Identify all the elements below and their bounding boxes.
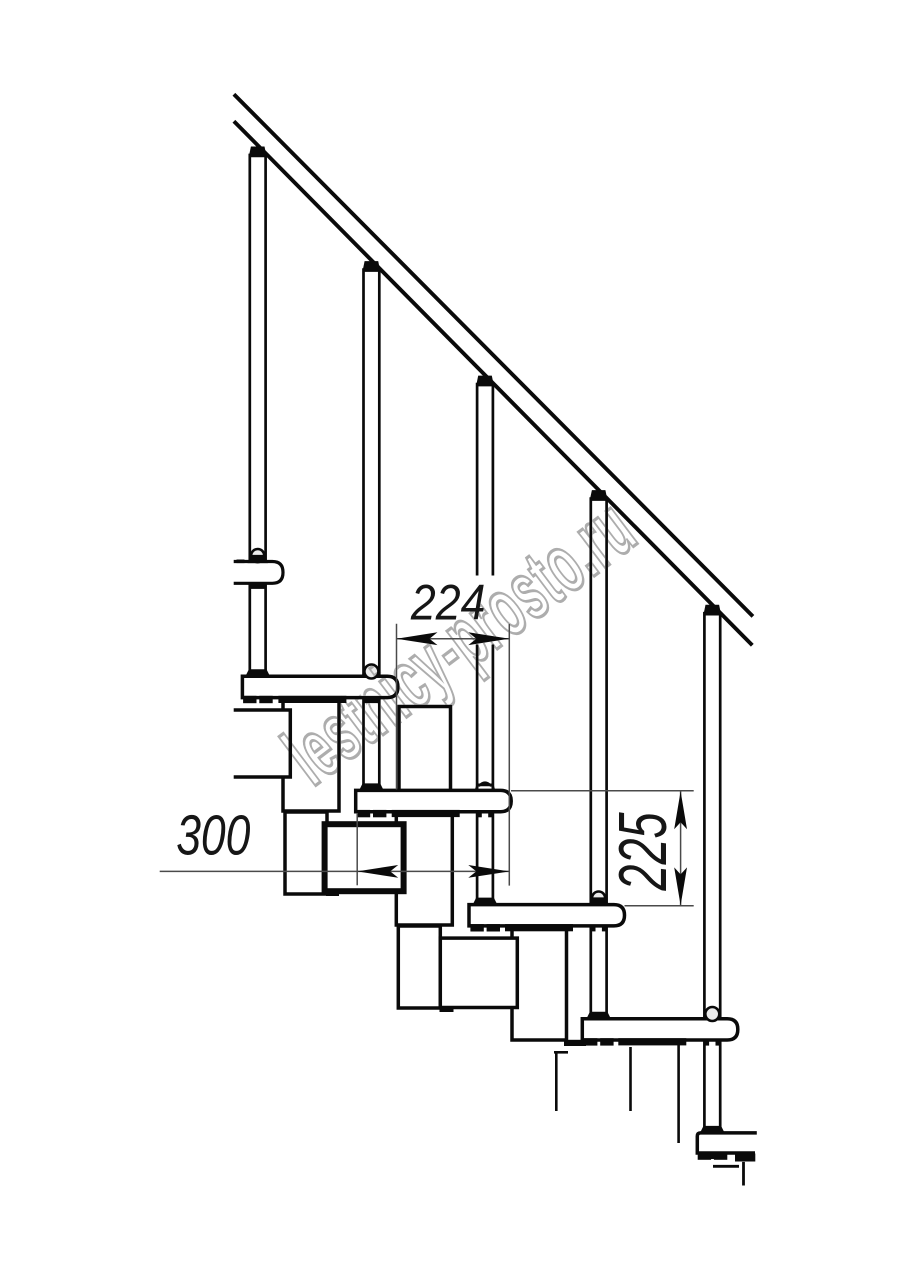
svg-text:300: 300 <box>176 803 250 867</box>
svg-text:225: 225 <box>605 812 681 891</box>
